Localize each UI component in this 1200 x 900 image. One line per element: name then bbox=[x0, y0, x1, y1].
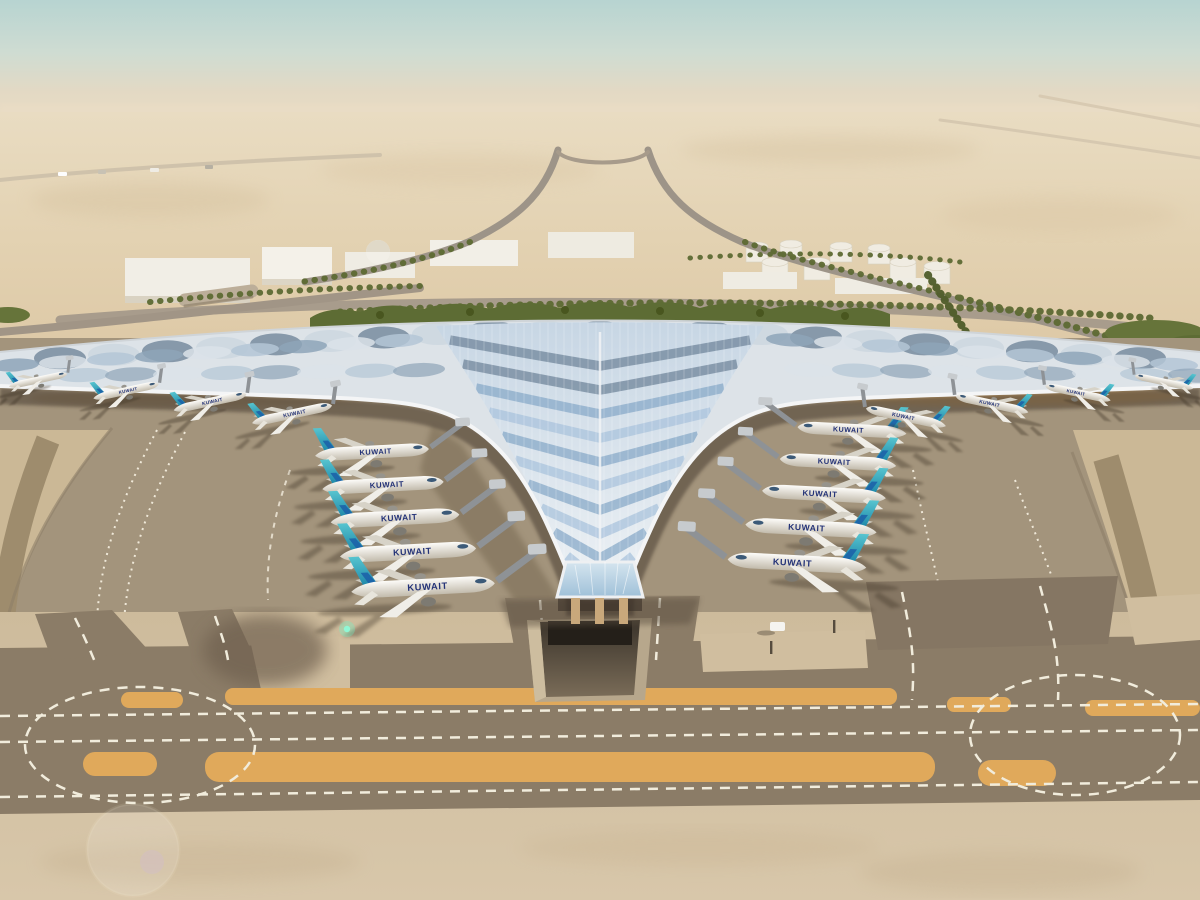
livery-title: KUWAIT bbox=[359, 446, 392, 457]
taxi-arm-right bbox=[866, 576, 1118, 650]
sky bbox=[0, 0, 1200, 118]
livery-title: KUWAIT bbox=[381, 512, 418, 524]
livery-title: KUWAIT bbox=[802, 488, 838, 499]
livery-title: KUWAIT bbox=[818, 456, 851, 467]
livery-title: KUWAIT bbox=[393, 546, 432, 558]
livery-title: KUWAIT bbox=[370, 479, 405, 490]
service-van bbox=[770, 622, 785, 631]
livery-title: KUWAIT bbox=[407, 581, 448, 593]
livery-title: KUWAIT bbox=[788, 522, 826, 534]
apex-facade bbox=[557, 562, 643, 597]
livery-title: KUWAIT bbox=[773, 557, 813, 569]
aerial-airport-rendering: KUWAITKUWAITKUWAITKUWAITKUWAITKUWAITKUWA… bbox=[0, 0, 1200, 900]
scene-canvas: KUWAITKUWAITKUWAITKUWAITKUWAITKUWAITKUWA… bbox=[0, 0, 1200, 900]
apex-columns bbox=[571, 598, 628, 624]
terminal-cast-shadow bbox=[203, 614, 327, 686]
